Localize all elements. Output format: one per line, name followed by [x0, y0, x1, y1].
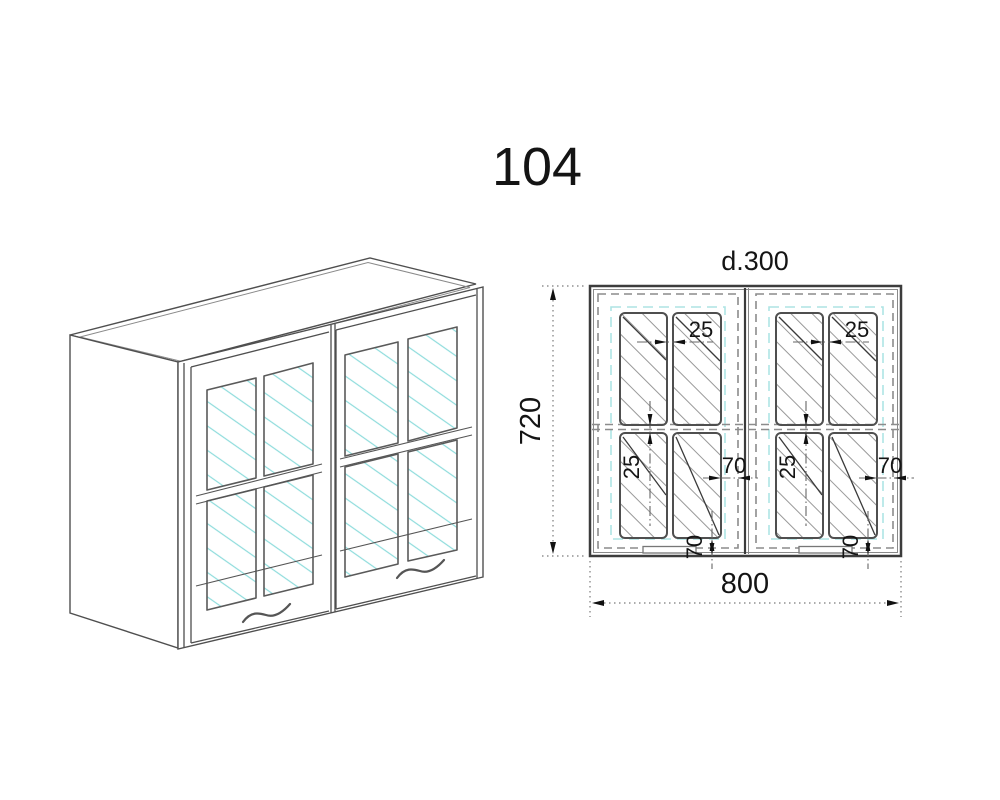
drawing-title: 104 [492, 137, 582, 197]
pane-gap-label-2: 25 [845, 317, 869, 342]
cabinet-technical-drawing: 104 [0, 0, 1000, 800]
edge-offset-label-1: 70 [722, 453, 746, 478]
edge-offset-label-4: 70 [838, 535, 863, 559]
pane-gap-label-1: 25 [689, 317, 713, 342]
cabinet-left-face [70, 335, 178, 648]
isometric-view [70, 258, 483, 649]
front-elevation-view: 720 800 d.300 25 25 25 [515, 246, 914, 617]
drawing-canvas: 104 [0, 0, 1000, 800]
pane-gap-label-3: 25 [619, 455, 644, 479]
width-dimension-label: 800 [721, 568, 769, 600]
edge-offset-label-2: 70 [878, 453, 902, 478]
height-dimension-label: 720 [515, 397, 547, 445]
edge-offset-label-3: 70 [682, 535, 707, 559]
depth-dimension-label: d.300 [721, 246, 789, 276]
dimension-800: 800 [590, 561, 901, 617]
pane-gap-label-4: 25 [775, 455, 800, 479]
dimension-720: 720 [515, 286, 587, 556]
